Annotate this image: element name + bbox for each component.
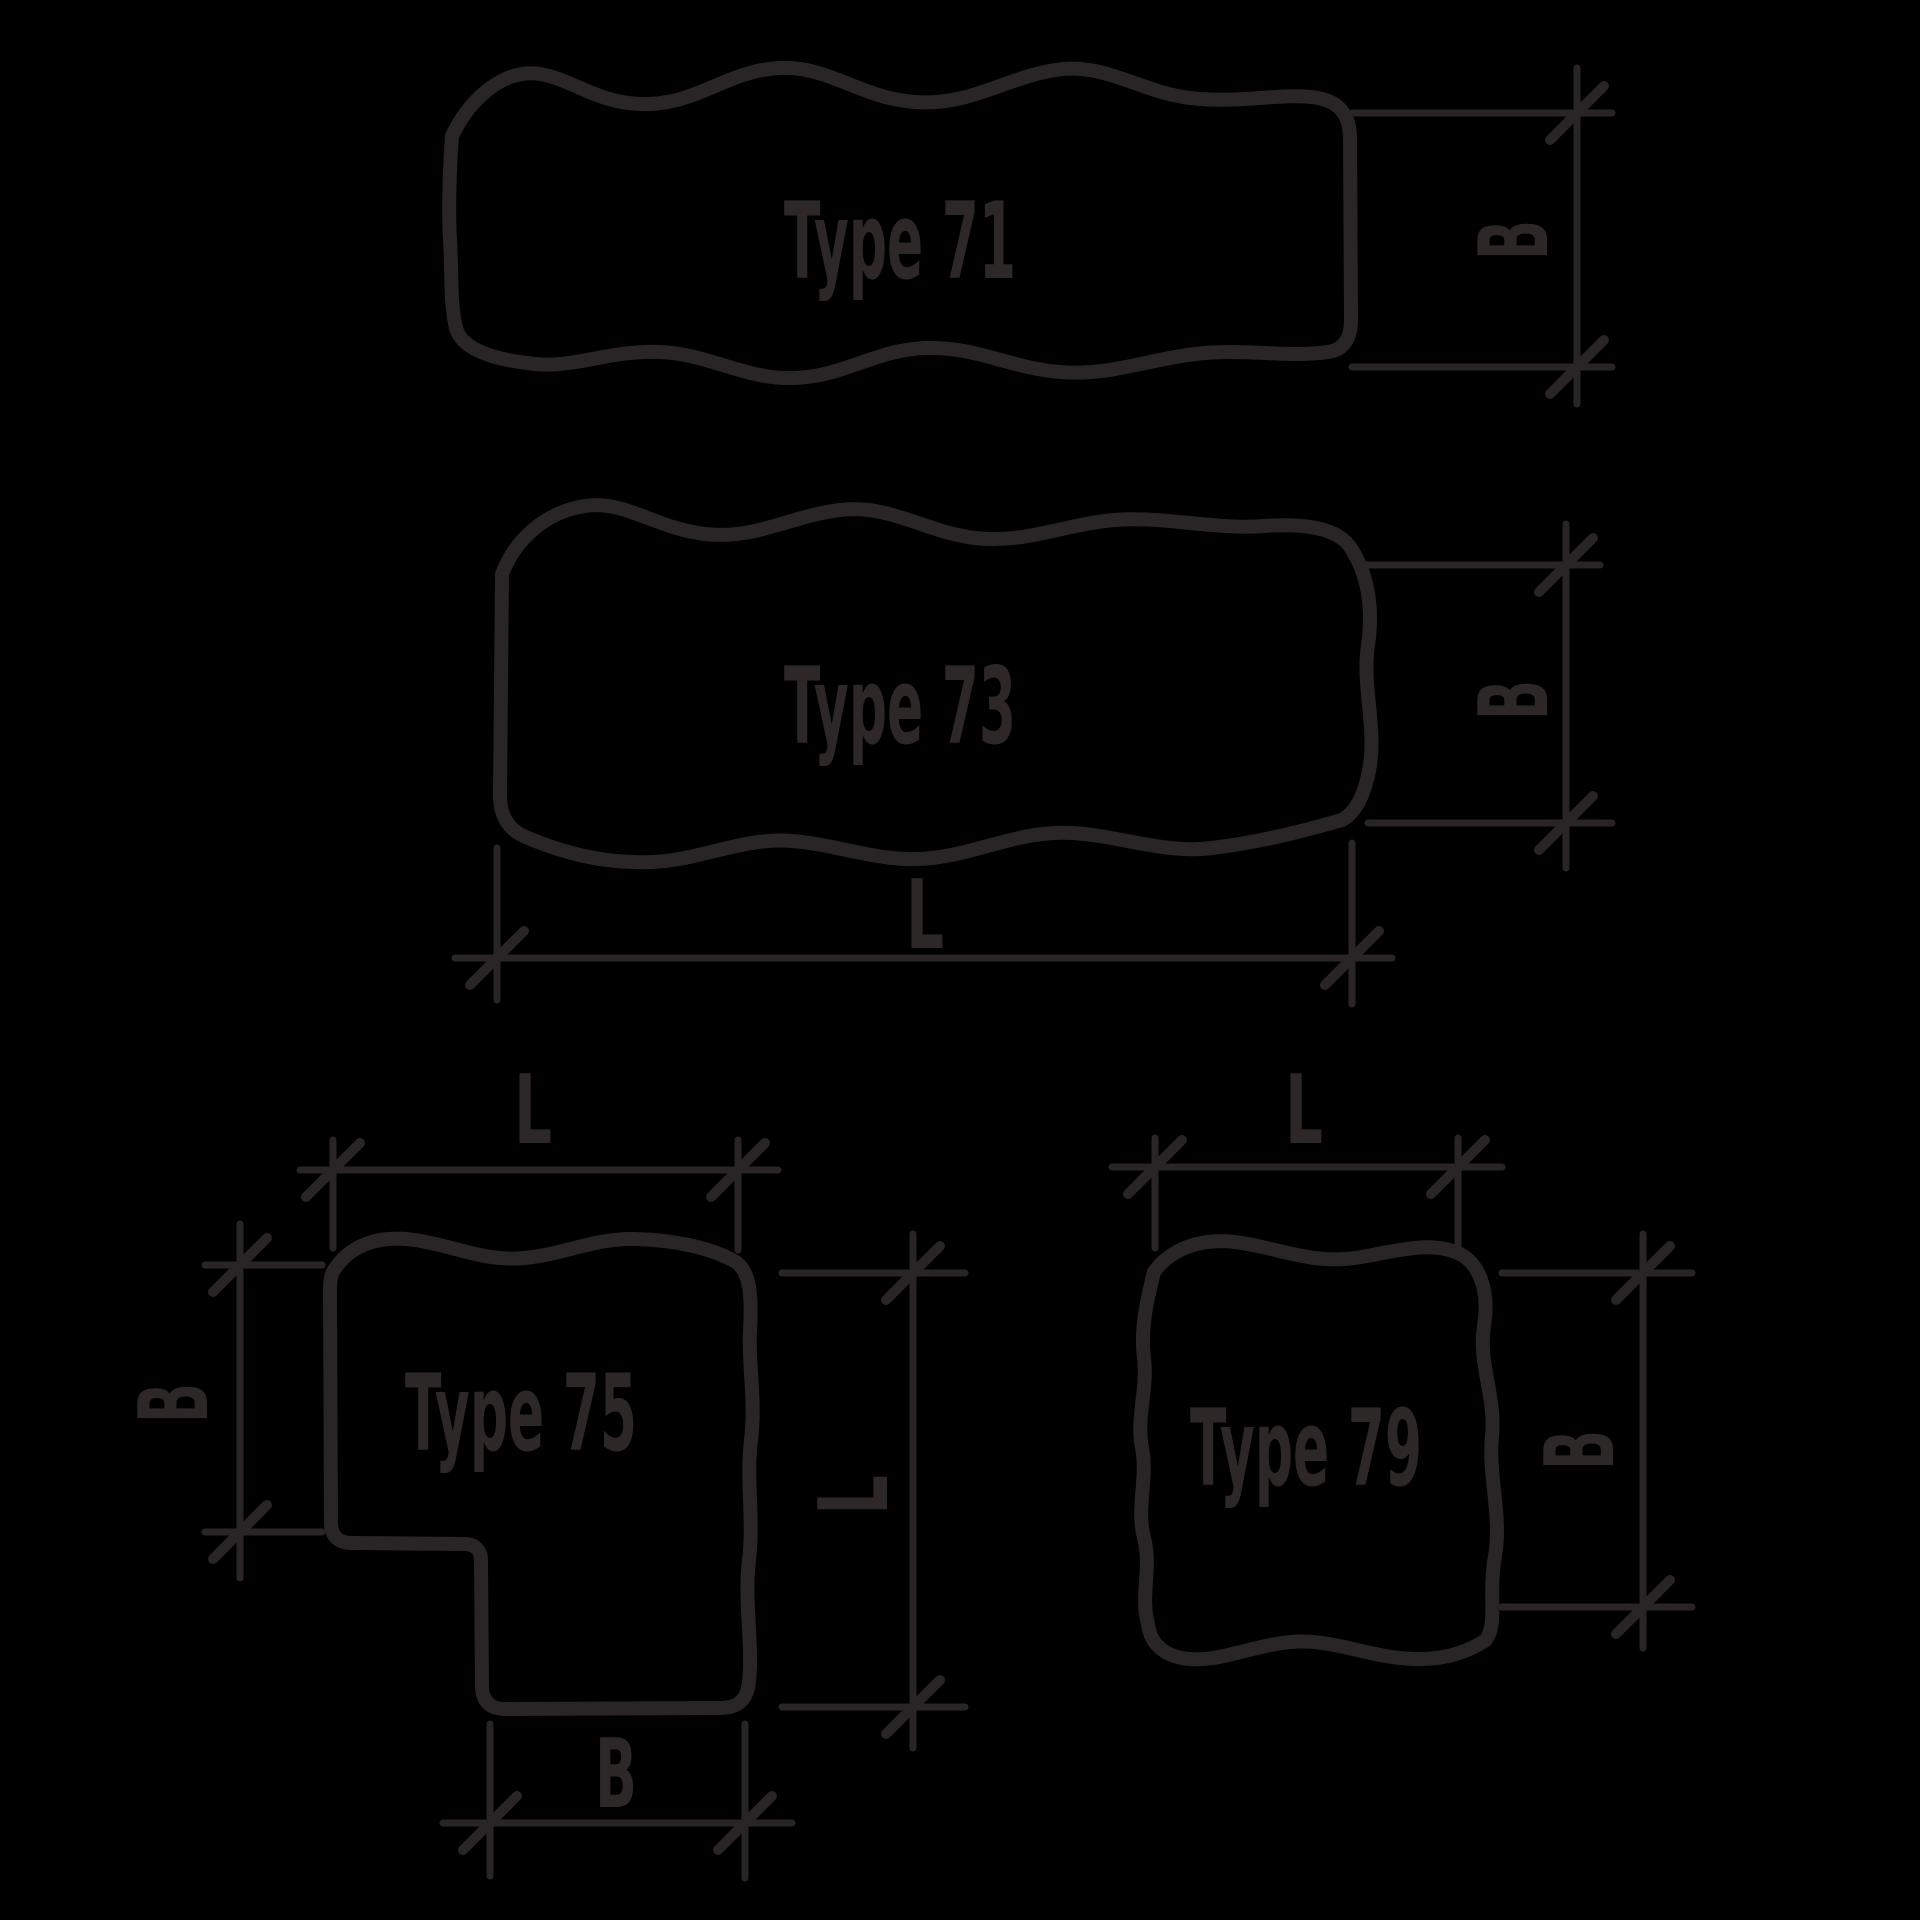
diagram-canvas: B Type 71 B L Type 73 [0,0,1920,1920]
type75-label: Type 75 [405,1352,637,1475]
type73-l-label: L [906,861,944,971]
type75-left-b-dimension: B [120,1224,322,1578]
type73-b-label: B [1460,680,1570,720]
type71-b-label: B [1460,220,1570,260]
figure-type79: L B Type 79 [1112,1056,1692,1659]
type79-top-l-label: L [1285,1056,1323,1166]
type73-l-dimension: L [455,843,1392,1004]
figure-type73: B L Type 73 [455,505,1612,1004]
type71-b-dimension: B [1352,68,1612,404]
type75-right-l-label: L [800,1475,910,1515]
type73-b-dimension: B [1362,524,1612,868]
type71-label: Type 71 [784,180,1016,303]
type79-right-b-dimension: B [1502,1234,1692,1648]
type75-bottom-b-label: B [595,1720,637,1830]
figure-type75: L B L B Type 75 [120,1056,965,1878]
diagram-svg: B Type 71 B L Type 73 [0,0,1920,1920]
type73-label: Type 73 [784,645,1016,768]
type75-right-l-dimension: L [782,1234,965,1748]
type79-right-b-label: B [1526,1430,1636,1470]
type79-top-l-dimension: L [1112,1056,1502,1250]
type75-left-b-label: B [120,1383,230,1423]
type75-top-l-label: L [514,1056,552,1166]
figure-type71: B Type 71 [449,68,1612,404]
type75-bottom-b-dimension: B [443,1720,792,1878]
type79-label: Type 79 [1190,1387,1422,1510]
type75-top-l-dimension: L [300,1056,778,1250]
